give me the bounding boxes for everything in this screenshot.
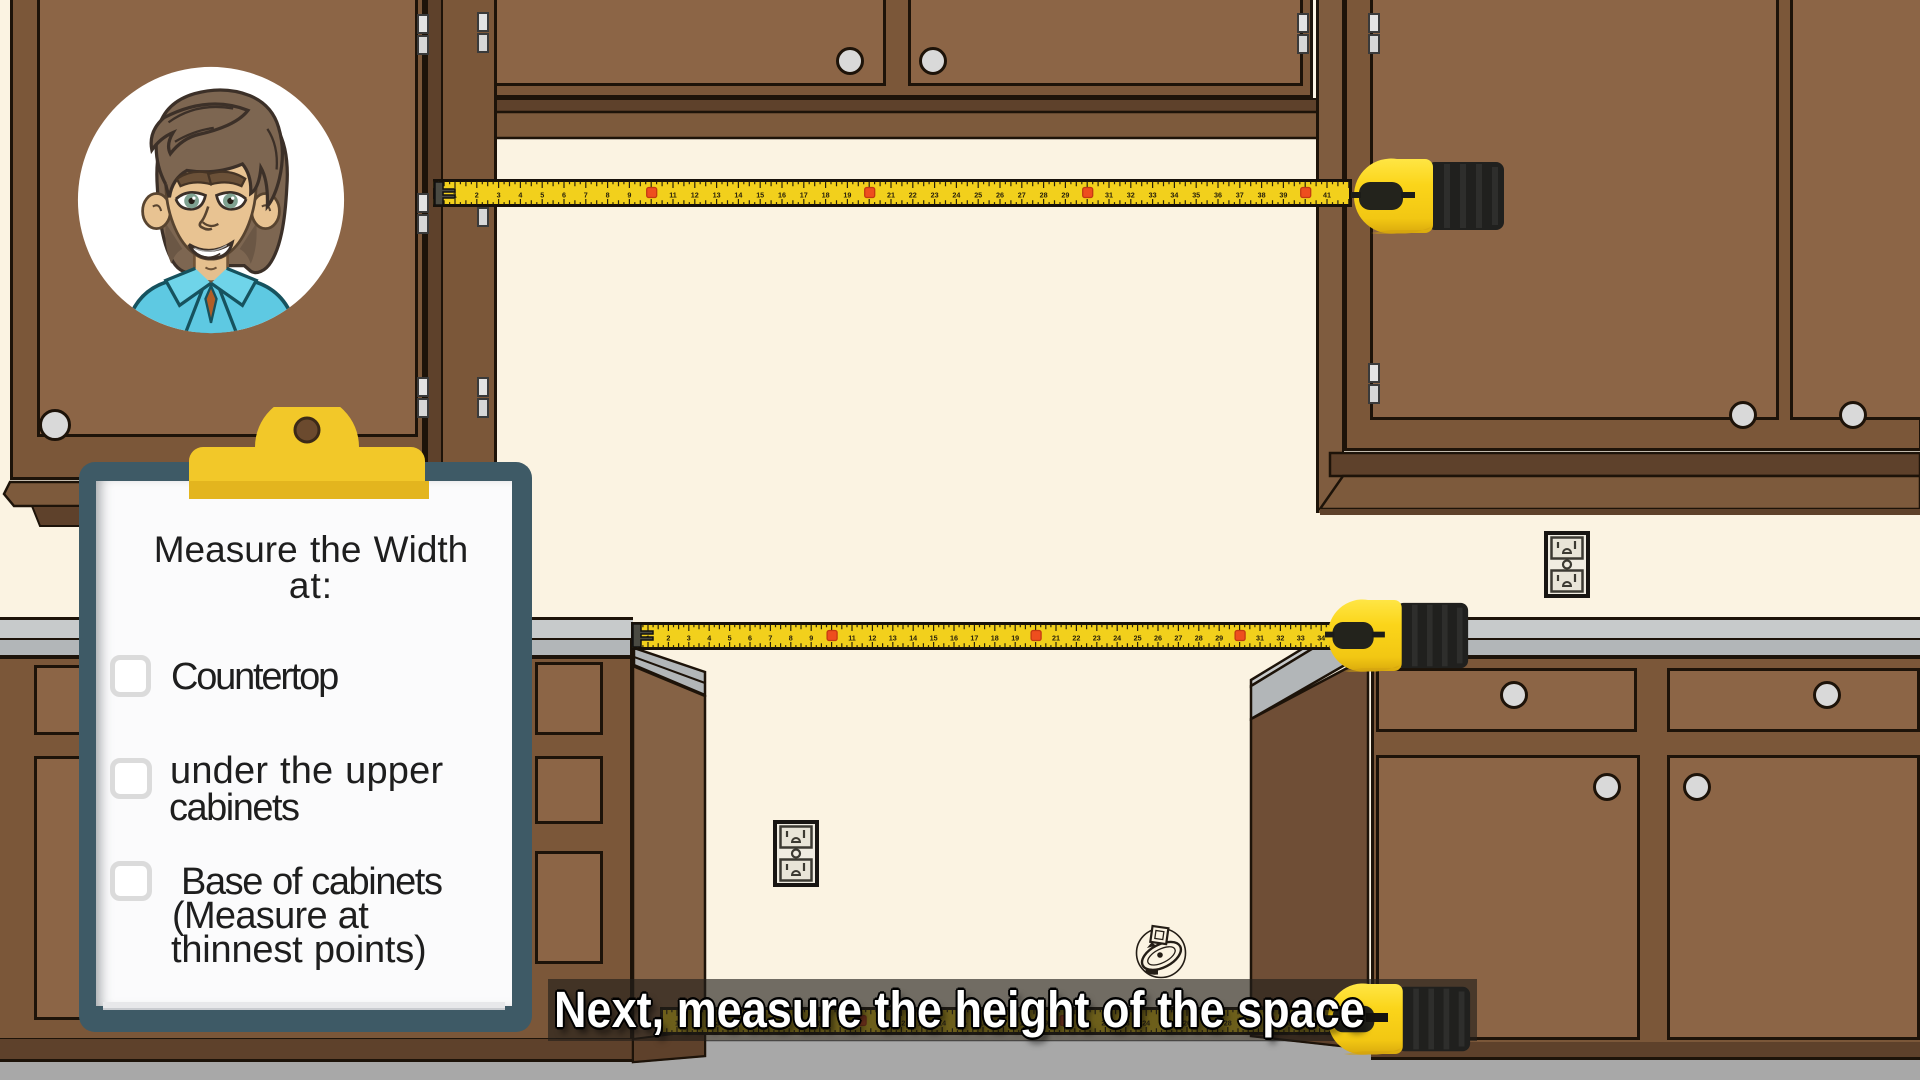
svg-text:15: 15 (930, 634, 938, 643)
svg-text:2: 2 (666, 634, 670, 643)
svg-text:34: 34 (1170, 191, 1178, 200)
svg-text:16: 16 (778, 191, 786, 200)
svg-text:27: 27 (1018, 191, 1026, 200)
svg-text:24: 24 (1113, 634, 1121, 643)
svg-text:19: 19 (1011, 634, 1019, 643)
svg-text:25: 25 (974, 191, 982, 200)
svg-text:21: 21 (887, 191, 895, 200)
svg-text:31: 31 (1256, 634, 1264, 643)
svg-text:2: 2 (475, 191, 479, 200)
svg-text:19: 19 (843, 191, 851, 200)
svg-text:21: 21 (1052, 634, 1060, 643)
svg-text:28: 28 (1195, 634, 1203, 643)
svg-text:29: 29 (1061, 191, 1069, 200)
svg-text:33: 33 (1297, 634, 1305, 643)
svg-text:41: 41 (1323, 191, 1331, 200)
svg-text:22: 22 (909, 191, 917, 200)
svg-text:11: 11 (669, 191, 677, 200)
svg-text:4: 4 (707, 634, 711, 643)
svg-text:23: 23 (931, 191, 939, 200)
svg-text:9: 9 (809, 634, 813, 643)
svg-text:37: 37 (1236, 191, 1244, 200)
svg-text:32: 32 (1276, 634, 1284, 643)
svg-text:7: 7 (768, 634, 772, 643)
svg-text:13: 13 (889, 634, 897, 643)
svg-text:23: 23 (1093, 634, 1101, 643)
svg-text:25: 25 (1134, 634, 1142, 643)
svg-text:29: 29 (1215, 634, 1223, 643)
svg-text:26: 26 (1154, 634, 1162, 643)
svg-text:14: 14 (909, 634, 917, 643)
svg-text:39: 39 (1279, 191, 1287, 200)
svg-text:38: 38 (1258, 191, 1266, 200)
svg-text:4: 4 (518, 191, 522, 200)
svg-text:9: 9 (627, 191, 631, 200)
svg-text:6: 6 (748, 634, 752, 643)
svg-text:11: 11 (848, 634, 856, 643)
svg-text:17: 17 (800, 191, 808, 200)
svg-text:5: 5 (728, 634, 732, 643)
svg-text:18: 18 (822, 191, 830, 200)
svg-text:8: 8 (789, 634, 793, 643)
svg-text:15: 15 (756, 191, 764, 200)
svg-text:22: 22 (1072, 634, 1080, 643)
svg-text:31: 31 (1105, 191, 1113, 200)
svg-text:7: 7 (584, 191, 588, 200)
svg-text:26: 26 (996, 191, 1004, 200)
svg-text:36: 36 (1214, 191, 1222, 200)
svg-text:17: 17 (970, 634, 978, 643)
svg-text:6: 6 (562, 191, 566, 200)
svg-text:18: 18 (991, 634, 999, 643)
svg-text:16: 16 (950, 634, 958, 643)
svg-text:12: 12 (868, 634, 876, 643)
svg-text:3: 3 (497, 191, 501, 200)
svg-text:8: 8 (606, 191, 610, 200)
svg-text:12: 12 (691, 191, 699, 200)
svg-text:24: 24 (952, 191, 960, 200)
svg-text:35: 35 (1192, 191, 1200, 200)
svg-text:33: 33 (1149, 191, 1157, 200)
svg-text:28: 28 (1040, 191, 1048, 200)
svg-text:32: 32 (1127, 191, 1135, 200)
svg-text:14: 14 (734, 191, 742, 200)
svg-text:34: 34 (1317, 634, 1325, 643)
svg-text:27: 27 (1174, 634, 1182, 643)
svg-text:3: 3 (687, 634, 691, 643)
svg-text:5: 5 (540, 191, 544, 200)
svg-text:13: 13 (713, 191, 721, 200)
